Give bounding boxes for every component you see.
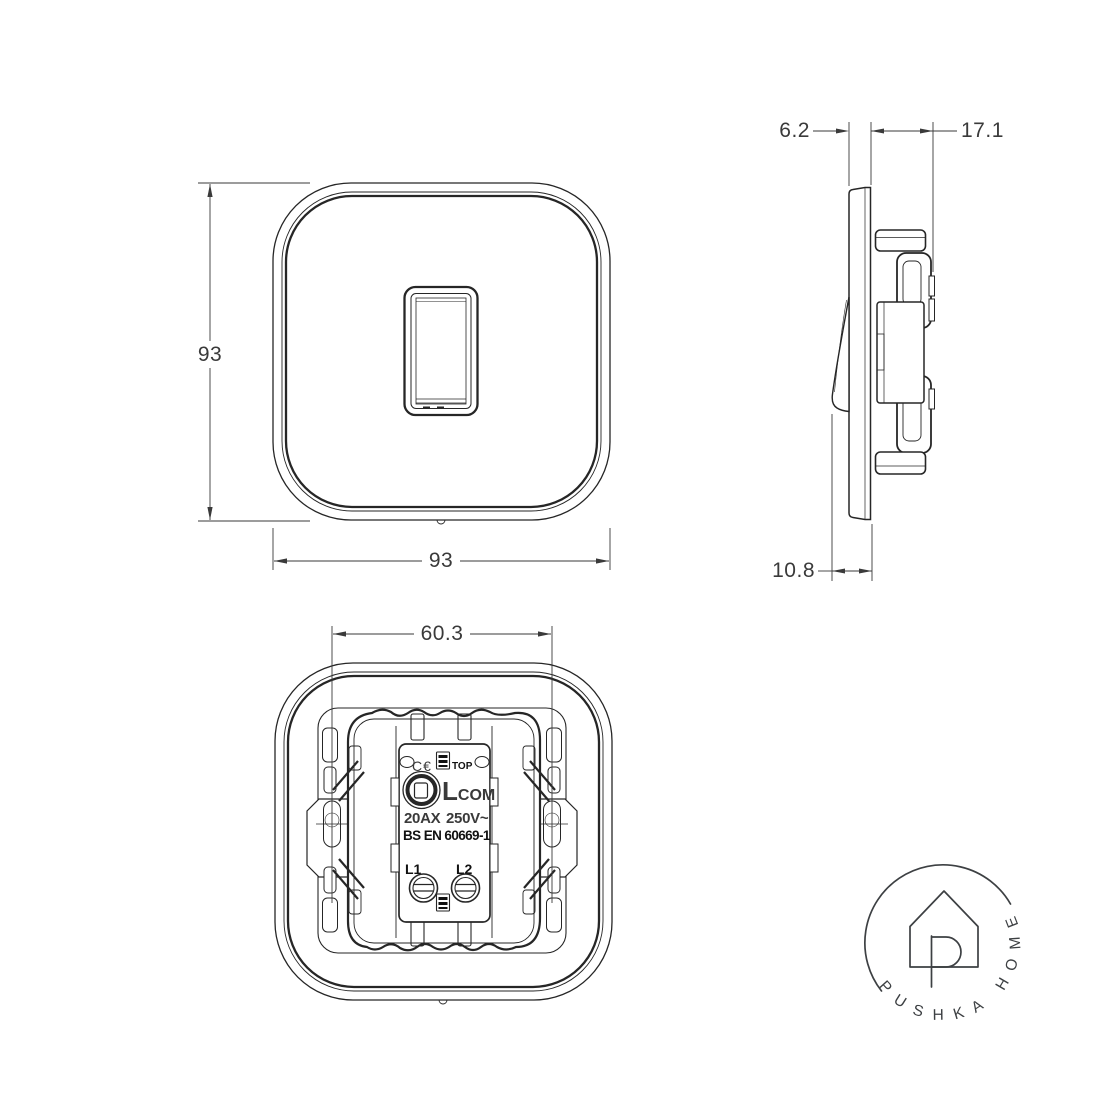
fixing-lug-left: [307, 799, 349, 877]
logo-p-monogram: [932, 936, 961, 987]
side-view: [832, 188, 934, 520]
technical-drawing-page: 93 93: [0, 0, 1100, 1100]
common-terminal-screw: [403, 772, 440, 809]
rocker-switch-front: [405, 287, 478, 415]
dim-front-height: 93: [198, 343, 222, 366]
front-plate-outer-outline: [273, 183, 610, 520]
dim-depth: 17.1: [961, 119, 1004, 142]
side-rocker: [832, 297, 849, 412]
back-view: C€ TOP LCOM 20AX250V~ BS EN 60669-1 L1: [275, 663, 612, 1004]
switch-module-back: C€ TOP LCOM 20AX250V~ BS EN 60669-1 L1: [391, 744, 498, 922]
top-label: TOP: [452, 761, 473, 772]
logo-house-icon: [910, 891, 978, 967]
fixing-lug-right: [535, 799, 577, 877]
brand-logo: PUSHKA HOME: [865, 865, 1025, 1024]
standard-label: BS EN 60669-1: [403, 828, 491, 843]
dim-switch-protrusion: 10.8: [772, 559, 815, 582]
dim-fixing-centres: 60.3: [421, 622, 464, 645]
rating-label: 20AX250V~: [404, 810, 489, 827]
switch-technical-drawing: 93 93: [0, 0, 1100, 1100]
side-mechanism: [876, 230, 935, 474]
dim-front-width: 93: [429, 549, 453, 572]
dim-plate-thickness: 6.2: [779, 119, 810, 142]
side-faceplate: [849, 188, 871, 520]
logo-brand-text: PUSHKA HOME: [875, 904, 1024, 1024]
front-plate-mid-outline: [282, 192, 601, 511]
logo-circle-arc: [865, 865, 1011, 991]
front-plate-inner-outline: [286, 196, 597, 507]
front-view: [273, 183, 610, 524]
